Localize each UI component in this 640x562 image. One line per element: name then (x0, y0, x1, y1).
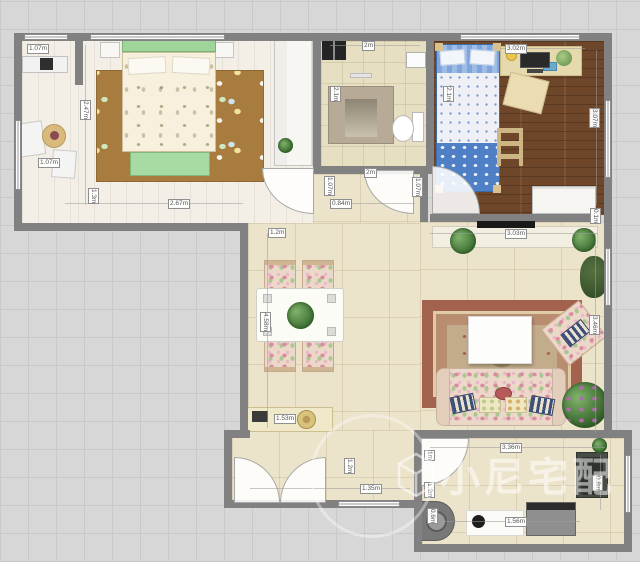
bed-post (435, 43, 443, 51)
wall (414, 544, 632, 552)
dimension-label: 1.56m (505, 517, 527, 527)
kitchen-plant-icon (592, 438, 607, 453)
dining-chair (264, 338, 296, 372)
dimension-label: 0.1m (590, 208, 601, 224)
bathroom-sink (406, 52, 426, 68)
wall (426, 33, 434, 166)
nightstand-left (100, 42, 120, 58)
wall (313, 33, 321, 173)
kids-room-window (460, 34, 580, 40)
dimension-label: 3.36m (500, 443, 522, 453)
wall (224, 430, 232, 508)
computer-monitor-icon (520, 52, 550, 68)
bed-foot-bench (130, 152, 210, 176)
place-setting (327, 327, 336, 336)
kids-room-side-window (605, 100, 611, 178)
dimension-label: 2.1m (330, 86, 341, 102)
dimension-label: 3.02m (505, 44, 527, 54)
wall (14, 223, 247, 231)
desk-plant-icon (556, 50, 572, 66)
pillow (470, 49, 496, 66)
dimension-label: 1.07m (324, 176, 335, 196)
bed-ladder (497, 128, 523, 166)
dimension-label: 2.67m (168, 199, 190, 209)
wall (421, 430, 624, 438)
bedroom-window (90, 34, 225, 40)
kitchen-window (625, 455, 631, 513)
console-plant-icon (572, 228, 596, 252)
coffee-table (468, 316, 532, 364)
dimension-label: 3.03m (505, 229, 527, 239)
shower-mat (322, 40, 346, 60)
floor-plant-icon (562, 382, 608, 428)
sofa-arm (437, 369, 450, 425)
floor-plan-canvas: 1.07m 2.47m 1.07m 2.67m 1.3m 2m 2.1m 2.1… (0, 0, 640, 562)
place-setting (327, 294, 336, 303)
dimension-label: 1.07m (27, 44, 49, 54)
toilet (392, 115, 414, 142)
flower-vase-icon (50, 131, 59, 140)
dimension-label: 4.58m (260, 312, 271, 332)
balcony-sink (40, 58, 53, 70)
dimension-label: 2.47m (80, 100, 91, 120)
pillow (440, 49, 466, 66)
dimension-label: 1.07m (38, 158, 60, 168)
towel (350, 73, 372, 78)
dimension-label: 2.1m (443, 86, 454, 102)
double-bed (122, 52, 216, 152)
dimension-label: 0.6m (427, 508, 438, 524)
living-room-window (605, 248, 611, 306)
console-plant-icon (450, 228, 476, 254)
kids-wardrobe (532, 186, 596, 214)
fridge (526, 502, 576, 536)
dimension-label: 1.53m (274, 414, 296, 424)
dimension-line (85, 45, 86, 205)
sofa (436, 368, 566, 426)
keyboard-icon (527, 69, 543, 73)
balcony-top-window (24, 34, 68, 40)
pillow (128, 56, 167, 75)
centerpiece-plant-icon (287, 302, 314, 329)
shower-tray (345, 99, 377, 137)
striped-pillow (449, 393, 476, 415)
balcony-side-window (15, 120, 21, 190)
dimension-label: 0.84m (330, 199, 352, 209)
dimension-label: 1.07m (412, 177, 423, 197)
striped-pillow (560, 319, 590, 348)
pillow (172, 56, 211, 75)
dimension-label: 2m (362, 41, 375, 51)
tv-icon (477, 221, 535, 228)
wall (75, 33, 83, 85)
bed-post (493, 185, 501, 193)
floral-pillow (479, 397, 501, 413)
potted-plant-icon (278, 138, 293, 153)
floral-pillow (505, 397, 527, 413)
dimension-label: 3.46m (589, 315, 600, 335)
watermark-cube-logo-icon (396, 452, 436, 498)
watermark-text: 小尼宅配 (440, 456, 616, 500)
striped-pillow (529, 395, 556, 416)
dimension-label: 3.07m (589, 108, 600, 128)
straw-hat-icon (297, 410, 316, 429)
kids-bed-quilt (437, 73, 499, 143)
sideboard-item (252, 411, 268, 422)
nightstand-right (214, 42, 234, 58)
wall (240, 223, 248, 430)
dining-chair (302, 338, 334, 372)
dimension-label: 2m (364, 168, 377, 178)
bed-headboard (122, 40, 216, 52)
wall (604, 33, 612, 438)
dimension-label: 1.2m (268, 228, 286, 238)
dimension-label: 1.3m (88, 188, 99, 204)
